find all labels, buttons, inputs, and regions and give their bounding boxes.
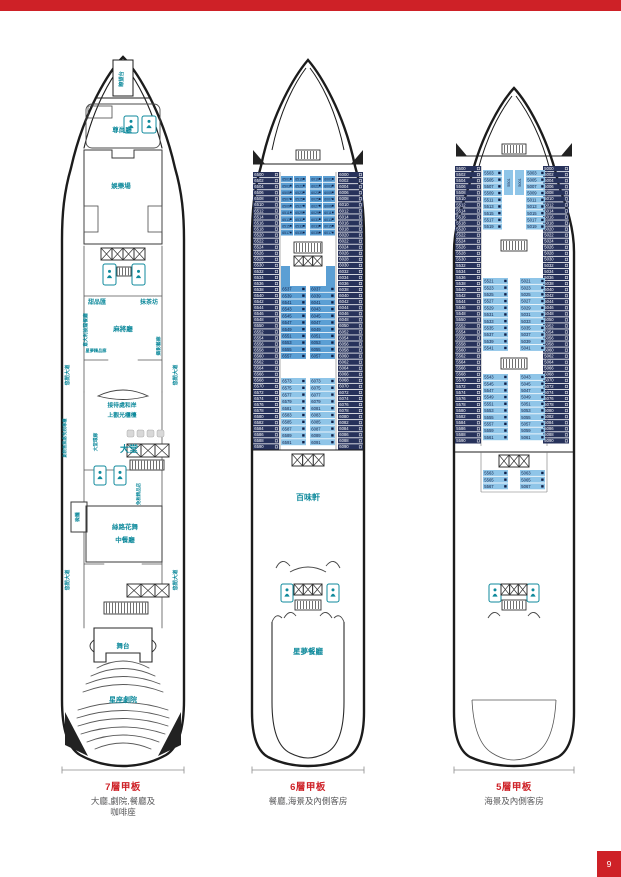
cabin-cell: 5564 (455, 360, 481, 365)
stairs-icon (130, 460, 164, 470)
cabin-cell: 6525 (294, 196, 306, 202)
cabin-cell: 6519 (294, 176, 306, 182)
cabin-cell: 6587 (281, 426, 306, 432)
cabin-number: 5004 (544, 178, 554, 183)
cabin-cell: 6585 (281, 419, 306, 425)
cabin-number: 6540 (254, 293, 264, 298)
cabin-number: 6070 (339, 384, 349, 389)
cabin-number: 5015 (527, 211, 537, 216)
venue-label: 劇院售票處/免稅專櫃 (61, 418, 68, 458)
cabin-cell: 6024 (338, 245, 363, 250)
cabin-cell: 6504 (253, 184, 279, 189)
venue-label: 星夢精品廊 (86, 347, 108, 354)
cabin-cell: 5049 (520, 394, 545, 400)
cabin-cell: 6001 (323, 176, 335, 182)
cabin-number: 5565 (484, 477, 494, 482)
cabin-number: 6089 (311, 433, 321, 438)
cabin-number: 6545 (282, 313, 292, 318)
cabin-number: 5526 (456, 245, 466, 250)
cabin-cell: 5521 (483, 278, 508, 284)
cabin-number: 6516 (254, 220, 264, 225)
cabin-cell: 6003 (323, 183, 335, 189)
cabin-cell: 5065 (520, 477, 545, 483)
cabin-cell: 5082 (543, 414, 569, 419)
cabin-cell: 6551 (281, 333, 306, 339)
cabin-cell: 5544 (455, 299, 481, 304)
cabin-cell: 5033 (520, 318, 545, 324)
cabin-number: 6010 (339, 202, 349, 207)
cabin-cell: 6584 (253, 426, 279, 431)
cabin-cell: 6040 (338, 293, 363, 298)
cabin-number: 6507 (282, 198, 290, 202)
cabin-cell: 6064 (338, 366, 363, 371)
deck-plans-canvas: 瞭望台尊尚廳娛樂場甜品匯抹茶坊麻將廳意大利披薩餐廳星夢精品廊攝影藝廊悠閒大道悠閒… (0, 0, 621, 877)
cabin-cell: 5545 (483, 381, 508, 387)
cabin-number: 5533 (484, 319, 494, 324)
cabin-cell: 6531 (294, 216, 306, 222)
lido-label: 百味軒 (296, 492, 320, 502)
cabin-number: 5512 (456, 202, 466, 207)
cabin-number: 5010 (544, 196, 554, 201)
cabin-cell: 6046 (338, 311, 363, 316)
cabin-cell: 6037 (310, 286, 335, 292)
cabin-number: 6548 (254, 317, 264, 322)
cabin-number: 5504 (456, 178, 466, 183)
cabin-number: 5053 (521, 408, 531, 413)
stairs-icon (295, 600, 321, 610)
cabin-cell: 5504 (455, 178, 481, 183)
cabin-cell: 5038 (543, 281, 569, 286)
cabin-cell: 6004 (338, 184, 363, 189)
cabin-number: 5515 (484, 211, 494, 216)
cabin-number: 6522 (254, 239, 264, 244)
cabin-number: 6521 (295, 184, 303, 188)
cabin-number: 6538 (254, 287, 264, 292)
cabin-number: 6553 (282, 340, 292, 345)
venue-label: 意大利披薩餐廳 (82, 313, 89, 347)
cabin-number: 6506 (254, 190, 264, 195)
cabin-number: 6523 (295, 191, 303, 195)
cabin-number: 6510 (254, 202, 264, 207)
cabin-cell: 6517 (281, 230, 293, 236)
cabin-cell: 6047 (310, 320, 335, 326)
cabin-cell: 6074 (338, 396, 363, 401)
cabin-number: 5056 (544, 335, 554, 340)
cabin-cell: 6038 (338, 287, 363, 292)
restroom-icon (142, 116, 156, 133)
cabin-number: 5578 (456, 402, 466, 407)
cabin-cell: 6075 (310, 385, 335, 391)
cabin-cell: 6556 (253, 341, 279, 346)
cabin-cell: 6026 (338, 251, 363, 256)
cabin-cell: 6586 (253, 432, 279, 437)
cabin-cell: 5022 (543, 233, 569, 238)
cabin-number: 6502 (254, 178, 264, 183)
cabin-cell: 5053 (520, 408, 545, 414)
cabin-number: 5052 (544, 323, 554, 328)
cabin-cell: 5060 (543, 347, 569, 352)
cabin-cell: 5568 (455, 372, 481, 377)
cabin-number: 6060 (339, 353, 349, 358)
cabin-cell: 6588 (253, 438, 279, 443)
cabin-number: 5507 (484, 184, 494, 189)
cabin-cell: 6545 (281, 313, 306, 319)
cabin-number: 6082 (339, 420, 349, 425)
cabin-cell: 5567 (483, 483, 508, 489)
cabin-number: 6039 (311, 293, 321, 298)
cabin-cell: 5529 (483, 305, 508, 311)
cabin-number: 5521 (484, 279, 494, 284)
cabin-number: 5544 (456, 299, 466, 304)
cabin-number: 6514 (254, 214, 264, 219)
cabin-number: 6024 (339, 245, 349, 250)
cabin-cell: 5046 (543, 305, 569, 310)
cabin-cell: 5027 (520, 298, 545, 304)
cabin-cell: 6516 (253, 220, 279, 225)
cabin-cell: 6546 (253, 311, 279, 316)
cabin-cell: 5539 (483, 338, 508, 344)
cabin-cell: 6008 (338, 196, 363, 201)
elevator-icon (501, 584, 527, 595)
cabin-cell: 5057 (520, 421, 545, 427)
cabin-cell: 5036 (543, 275, 569, 280)
cabin-cell: 6056 (338, 341, 363, 346)
cabin-number: 6574 (254, 396, 264, 401)
cabin-cell: 5035 (520, 325, 545, 331)
cabin-cell: 6514 (253, 214, 279, 219)
cabin-cell-vertical (326, 266, 335, 286)
cabin-number: 6018 (339, 226, 349, 231)
cabin-number: 6544 (254, 305, 264, 310)
stairs-icon (104, 602, 148, 614)
cabin-number: 5532 (456, 263, 466, 268)
cabin-number: 5076 (544, 396, 554, 401)
cabin-number: 6058 (339, 347, 349, 352)
cabin-cell: 5013 (526, 204, 545, 210)
cabin-number: 5557 (484, 422, 494, 427)
cabin-number: 6527 (295, 204, 303, 208)
cabin-number: 6026 (339, 251, 349, 256)
cabin-cell: 6027 (310, 203, 322, 209)
cabin-number: 5542 (456, 293, 466, 298)
cabin-cell: 5028 (543, 251, 569, 256)
cabin-cell: 6050 (338, 323, 363, 328)
cabin-cell: 5051 (520, 401, 545, 407)
cabin-cell: 5586 (455, 426, 481, 431)
cabin-cell: 5534 (455, 269, 481, 274)
cabin-number: 6037 (311, 287, 321, 292)
cabin-cell: 6086 (338, 432, 363, 437)
cabin-cell: 6012 (338, 208, 363, 213)
cabin-cell: 5078 (543, 402, 569, 407)
cabin-number: 5084 (544, 420, 554, 425)
cabin-number: 6541 (282, 300, 292, 305)
cabin-cell: 6006 (338, 190, 363, 195)
cabin-number: 5039 (521, 339, 531, 344)
cabin-cell: 5513 (483, 204, 502, 210)
deck6-plan: 6500650265046506650865106512651465166518… (252, 60, 364, 766)
cabin-cell: 5034 (543, 269, 569, 274)
elevator-lobby-icon (132, 264, 145, 285)
cabin-cell: 6555 (281, 346, 306, 352)
cabin-number: 6076 (339, 402, 349, 407)
cabin-cell: 5007 (526, 183, 545, 189)
cabin-cell: 6070 (338, 384, 363, 389)
deck7-hull (62, 57, 184, 766)
cabin-number: 6556 (254, 341, 264, 346)
cabin-cell: 6028 (338, 257, 363, 262)
cabin-cell: 6529 (294, 210, 306, 216)
cabin-number: 6025 (311, 198, 319, 202)
cabin-cell: 5050 (543, 317, 569, 322)
cabin-cell: 6029 (310, 210, 322, 216)
cabin-number: 6034 (339, 275, 349, 280)
cabin-cell: 5543 (483, 374, 508, 380)
cabin-number: 5014 (544, 208, 554, 213)
cabin-number: 6555 (282, 347, 292, 352)
cabin-number: 5032 (544, 263, 554, 268)
venue-label: 絲路花舞 (112, 522, 139, 531)
deck5-caption-desc1: 海景及內側客房 (484, 796, 544, 806)
cabin-number: 6572 (254, 390, 264, 395)
cabin-cell: 5572 (455, 384, 481, 389)
cabin-number: 6079 (311, 399, 321, 404)
cabin-cell: 5002 (543, 172, 569, 177)
restroom-icon (94, 466, 106, 485)
cabin-cell: 6077 (310, 392, 335, 398)
cabin-number: 5003 (527, 171, 537, 176)
deck7-plan: 瞭望台尊尚廳娛樂場甜品匯抹茶坊麻將廳意大利披薩餐廳星夢精品廊攝影藝廊悠閒大道悠閒… (61, 57, 184, 766)
cabin-number: 6014 (339, 214, 349, 219)
cabin-cell: 6073 (310, 378, 335, 384)
cabin-number: 5007 (527, 184, 537, 189)
cabin-number: 6513 (282, 218, 290, 222)
cabin-cell: 5008 (543, 190, 569, 195)
cabin-number: 6578 (254, 408, 264, 413)
cabin-number: 6587 (282, 426, 292, 431)
cabin-number: 6017 (324, 231, 332, 235)
cabin-number: 6505 (282, 191, 290, 195)
cabin-cell: 5518 (455, 220, 481, 225)
cabin-number: 6542 (254, 299, 264, 304)
cabin-cell: 5005 (526, 177, 545, 183)
deck6-caption-desc1: 餐廳,海景及內側客房 (269, 796, 348, 806)
cabin-cell: 5506 (455, 184, 481, 189)
cabin-cell: 6562 (253, 360, 279, 365)
cabin-cell: 6025 (310, 196, 322, 202)
cabin-number: 6050 (339, 323, 349, 328)
cabin-cell: 5522 (455, 233, 481, 238)
cabin-cell: 5054 (543, 329, 569, 334)
cabin-cell: 6506 (253, 190, 279, 195)
cabin-cell: 5576 (455, 396, 481, 401)
cabin-cell: 6078 (338, 408, 363, 413)
cabin-cell: 5066 (543, 366, 569, 371)
cabin-cell: 5588 (455, 432, 481, 437)
cabin-number: 6075 (311, 386, 321, 391)
cabin-cell: 5553 (483, 408, 508, 414)
cabin-cell: 5507 (483, 183, 502, 189)
cabin-cell: 6020 (338, 232, 363, 237)
cabin-number: 5586 (456, 426, 466, 431)
cabin-number: 5043 (521, 375, 531, 380)
cabin-cell: 6574 (253, 396, 279, 401)
cabin-number: 5027 (521, 299, 531, 304)
cabin-cell: 6543 (281, 306, 306, 312)
cabin-number: 6043 (311, 307, 321, 312)
cabin-number: 5008 (544, 190, 554, 195)
cabin-number: 6534 (254, 275, 264, 280)
cabin-cell: 5555 (483, 414, 508, 420)
cabin-cell: 6019 (310, 176, 322, 182)
cabin-number: 6579 (282, 399, 292, 404)
cabin-number: 6551 (282, 334, 292, 339)
cabin-number: 5072 (544, 384, 554, 389)
cabin-number: 5559 (484, 428, 494, 433)
cabin-number: 5036 (544, 275, 554, 280)
cabin-number: 6573 (282, 379, 292, 384)
cabin-cell: 6515 (281, 223, 293, 229)
cabin-cell: 5562 (455, 354, 481, 359)
cabin-number: 6036 (339, 281, 349, 286)
cabin-number: 5063 (521, 471, 531, 476)
deck6-caption-title: 6層甲板 (228, 779, 388, 793)
cabin-number: 6543 (282, 307, 292, 312)
cabin-number: 6056 (339, 341, 349, 346)
cabin-number: 5026 (544, 245, 554, 250)
cabin-cell: 5006 (543, 184, 569, 189)
ship-length-brackets (62, 767, 574, 774)
cabin-number: 6511 (282, 211, 289, 215)
cabin-cell: 5526 (455, 245, 481, 250)
cabin-number: 5561 (484, 435, 494, 440)
cabin-cell: 5074 (543, 390, 569, 395)
cabin-cell: 6089 (310, 432, 335, 438)
cabin-number: 6032 (339, 269, 349, 274)
cabin-number: 5568 (456, 372, 466, 377)
cabin-number: 6054 (339, 335, 349, 340)
cabin-cell-vertical: 5501 (504, 170, 513, 195)
cabin-cell: 6034 (338, 275, 363, 280)
cabin-number: 6020 (339, 232, 349, 237)
cabin-number: 6042 (339, 299, 349, 304)
cabin-cell: 5032 (543, 263, 569, 268)
venue-label: 星座劇院 (109, 695, 137, 704)
cabin-cell: 6501 (281, 176, 293, 182)
cabin-number: 6528 (254, 257, 264, 262)
cabin-number: 5060 (544, 347, 554, 352)
cabin-number: 6090 (339, 444, 349, 449)
cabin-number: 6011 (324, 211, 331, 215)
cabin-number: 6512 (254, 208, 264, 213)
cabin-number: 5045 (521, 381, 531, 386)
cabin-number: 6589 (282, 433, 292, 438)
cabin-cell: 6007 (323, 196, 335, 202)
cabin-number: 5576 (456, 396, 466, 401)
cabin-cell: 6548 (253, 317, 279, 322)
cabin-number: 6535 (295, 231, 303, 235)
cabin-number: 6503 (282, 184, 290, 188)
cabin-cell: 6537 (281, 286, 306, 292)
cabin-cell: 5086 (543, 426, 569, 431)
cabin-cell: 6085 (310, 419, 335, 425)
cabin-number: 6002 (339, 178, 349, 183)
cabin-cell: 6044 (338, 305, 363, 310)
cabin-number: 6055 (311, 347, 321, 352)
cabin-number: 5006 (544, 184, 554, 189)
cabin-number: 5539 (484, 339, 494, 344)
elevator-icon (292, 454, 324, 466)
cabin-cell: 5514 (455, 208, 481, 213)
cabin-number: 6052 (339, 329, 349, 334)
cabin-number: 6585 (282, 420, 292, 425)
venue-label: 免稅精品店 (135, 482, 142, 505)
cabin-number: 5590 (456, 438, 466, 443)
cabin-number: 5535 (484, 326, 494, 331)
cabin-cell: 6066 (338, 372, 363, 377)
cabin-cell: 5067 (520, 483, 545, 489)
cabin-number: 5037 (521, 332, 531, 337)
cabin-number: 5088 (544, 432, 554, 437)
cabin-number: 5086 (544, 426, 554, 431)
cabin-cell: 5580 (455, 408, 481, 413)
cabin-number: 6066 (339, 372, 349, 377)
cabin-cell: 6572 (253, 390, 279, 395)
cabin-number: 5001 (518, 178, 522, 186)
cabin-number: 5537 (484, 332, 494, 337)
cabin-number: 5012 (544, 202, 554, 207)
cabin-number: 5523 (484, 285, 494, 290)
cabin-number: 5059 (521, 428, 531, 433)
cabin-number: 5503 (484, 171, 494, 176)
cabin-cell: 6060 (338, 353, 363, 358)
cabin-number: 6044 (339, 305, 349, 310)
cabin-cell: 6048 (338, 317, 363, 322)
cabin-number: 6520 (254, 232, 264, 237)
cabin-cell: 5551 (483, 401, 508, 407)
cabin-number: 6581 (282, 406, 292, 411)
cabin-number: 6524 (254, 245, 264, 250)
cabin-cell: 6080 (338, 414, 363, 419)
cabin-number: 5066 (544, 366, 554, 371)
cabin-cell: 5026 (543, 245, 569, 250)
cabin-number: 5013 (527, 204, 537, 209)
cabin-number: 6088 (339, 438, 349, 443)
cabin-cell: 6540 (253, 293, 279, 298)
cabin-number: 6537 (282, 287, 292, 292)
cabin-cell: 5560 (455, 347, 481, 352)
cabin-cell: 6009 (323, 203, 335, 209)
cabin-cell: 6072 (338, 390, 363, 395)
cabin-cell: 5509 (483, 190, 502, 196)
cabin-number: 6028 (339, 257, 349, 262)
cabin-cell: 6042 (338, 299, 363, 304)
cabin-cell: 5548 (455, 311, 481, 316)
cabin-cell: 6568 (253, 378, 279, 383)
cabin-cell: 5019 (526, 224, 545, 230)
cabin-cell: 6553 (281, 340, 306, 346)
cabin-cell: 5015 (526, 210, 545, 216)
cabin-cell: 5000 (543, 166, 569, 171)
cabin-number: 5516 (456, 214, 466, 219)
cabin-number: 6586 (254, 432, 264, 437)
cabin-cell: 5533 (483, 318, 508, 324)
cabin-cell: 6500 (253, 172, 279, 177)
cabin-number: 6038 (339, 287, 349, 292)
cabin-cell: 5042 (543, 293, 569, 298)
cabin-cell: 5511 (483, 197, 502, 203)
cabin-cell: 5016 (543, 214, 569, 219)
